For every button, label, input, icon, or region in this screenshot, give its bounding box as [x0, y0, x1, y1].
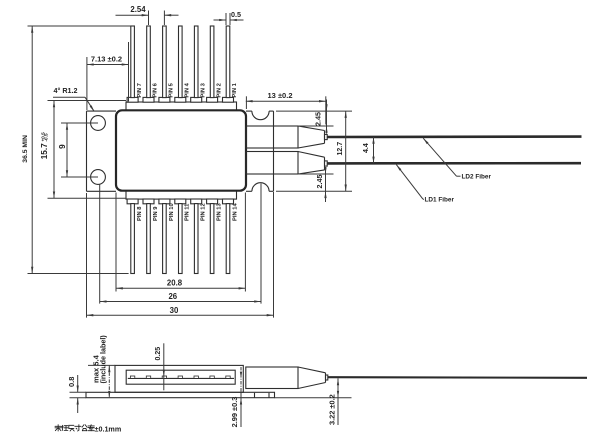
svg-text:26: 26 — [168, 292, 177, 301]
svg-text:±0.1mm: ±0.1mm — [95, 424, 122, 433]
svg-text:PIN 13: PIN 13 — [217, 203, 223, 221]
svg-text:PIN 3: PIN 3 — [200, 82, 206, 97]
svg-text:PIN 9: PIN 9 — [153, 206, 159, 221]
svg-text:2.45: 2.45 — [315, 175, 324, 189]
svg-text:20.8: 20.8 — [167, 278, 183, 287]
svg-text:0.25: 0.25 — [155, 347, 162, 361]
svg-text:(include label): (include label) — [98, 335, 107, 384]
svg-text:PIN 4: PIN 4 — [185, 82, 191, 97]
svg-text:2.99 ±0.3: 2.99 ±0.3 — [230, 397, 239, 428]
svg-text:PIN 8: PIN 8 — [137, 206, 143, 221]
svg-text:PIN 11: PIN 11 — [185, 203, 191, 221]
svg-text:13 ±0.2: 13 ±0.2 — [268, 91, 293, 100]
svg-text:3.22 ±0.2: 3.22 ±0.2 — [327, 394, 336, 425]
svg-text:PIN 6: PIN 6 — [153, 82, 159, 97]
svg-text:LD2 Fiber: LD2 Fiber — [462, 174, 492, 181]
svg-text:PIN 1: PIN 1 — [232, 82, 238, 97]
svg-text:30: 30 — [170, 306, 179, 315]
svg-text:36.5 MIN: 36.5 MIN — [22, 135, 29, 163]
svg-text:PIN 7: PIN 7 — [137, 83, 143, 98]
svg-text:2.54: 2.54 — [130, 5, 146, 14]
svg-text:15.7: 15.7 — [40, 143, 49, 159]
svg-text:0.5: 0.5 — [231, 10, 241, 19]
svg-text:7.13 ±0.2: 7.13 ±0.2 — [91, 54, 122, 63]
svg-text:4.4: 4.4 — [363, 143, 370, 153]
svg-text:-0.5: -0.5 — [43, 133, 48, 141]
svg-text:PIN 10: PIN 10 — [169, 203, 175, 221]
svg-text:2.45: 2.45 — [314, 112, 323, 126]
svg-text:PIN 14: PIN 14 — [232, 203, 238, 221]
svg-text:PIN 12: PIN 12 — [201, 203, 207, 221]
svg-text:12.7: 12.7 — [337, 142, 344, 156]
svg-text:PIN 5: PIN 5 — [169, 82, 175, 97]
svg-text:4° R1.2: 4° R1.2 — [54, 86, 78, 95]
svg-text:0.8: 0.8 — [67, 377, 76, 387]
svg-text:LD1 Fiber: LD1 Fiber — [425, 197, 455, 204]
svg-text:PIN 2: PIN 2 — [216, 83, 222, 98]
svg-text:9: 9 — [58, 144, 67, 149]
